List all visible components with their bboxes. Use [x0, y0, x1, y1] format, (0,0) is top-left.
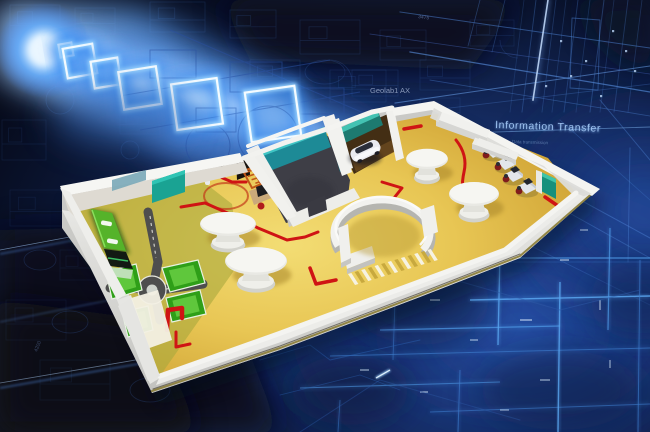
- svg-text:Geolab1 AX: Geolab1 AX: [370, 86, 410, 95]
